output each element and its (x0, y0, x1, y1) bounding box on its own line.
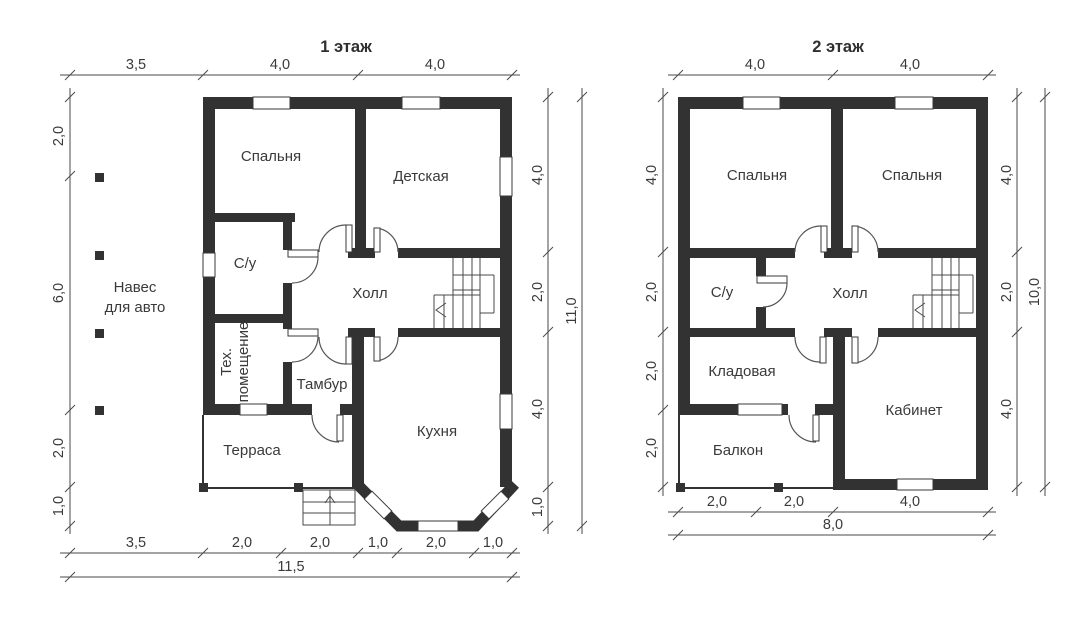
dim-label: 10,0 (1027, 278, 1043, 306)
dim-label: 4,0 (900, 494, 920, 510)
wall (678, 97, 690, 415)
room-label-hall: Холл (832, 285, 867, 302)
room-label-nursery: Детская (393, 168, 449, 185)
column-post (95, 251, 104, 260)
window (897, 479, 933, 490)
room-label-carport-line2: для авто (105, 299, 166, 316)
dim-label: 4,0 (270, 57, 290, 73)
wall (878, 248, 976, 258)
room-label-tambour: Тамбур (297, 376, 348, 393)
door-leaf (346, 337, 352, 364)
door-arc (795, 337, 820, 362)
door-arc (312, 415, 339, 442)
floor-plan-sheet: 1 этаж (0, 0, 1090, 624)
dim-label: 4,0 (900, 57, 920, 73)
wall (203, 314, 292, 323)
wall (398, 248, 500, 258)
window (203, 253, 215, 277)
window (738, 404, 782, 415)
dim-label: 2,0 (51, 126, 67, 146)
window (743, 97, 780, 109)
wall (283, 362, 292, 404)
door-leaf (374, 228, 380, 252)
column-post (95, 173, 104, 182)
door-arc (292, 336, 318, 362)
wall (878, 328, 976, 337)
window (500, 394, 512, 429)
dim-label: 4,0 (999, 165, 1015, 185)
door-arc (319, 337, 346, 364)
dim-label: 3,5 (126, 535, 146, 551)
door-leaf (757, 276, 787, 283)
floor-plan-2: 2 этаж (644, 38, 1050, 540)
dim-label: 2,0 (51, 438, 67, 458)
dim-label: 2,0 (530, 282, 546, 302)
door-leaf (346, 225, 352, 252)
room-label-bathroom: С/у (711, 284, 734, 301)
column-post (199, 483, 208, 492)
door-leaf (852, 337, 858, 363)
wall (283, 213, 292, 250)
room-label-study: Кабинет (885, 402, 942, 419)
wall (352, 328, 364, 487)
wall (833, 328, 845, 490)
wall (355, 97, 366, 258)
dim-label: 4,0 (530, 165, 546, 185)
room-label-bedroom: Спальня (241, 148, 301, 165)
dim-label: 6,0 (51, 283, 67, 303)
door-leaf (374, 337, 380, 361)
door-arc (292, 257, 318, 283)
room-label-carport-line1: Навес (114, 279, 157, 296)
dim-label: 2,0 (232, 535, 252, 551)
wall (203, 213, 295, 222)
wall (976, 97, 988, 490)
window (402, 97, 440, 109)
dim-label: 3,5 (126, 57, 146, 73)
plan1-title: 1 этаж (320, 38, 372, 56)
wall (690, 328, 795, 337)
door-arc (789, 415, 816, 442)
dim-label: 4,0 (644, 165, 660, 185)
dim-label: 1,0 (530, 497, 546, 517)
dim-label: 1,0 (51, 496, 67, 516)
dim-label: 1,0 (368, 535, 388, 551)
dim-label: 2,0 (310, 535, 330, 551)
column-post (294, 483, 303, 492)
room-label-hall: Холл (352, 285, 387, 302)
plan1-carport-posts (95, 173, 104, 415)
dim-label: 4,0 (745, 57, 765, 73)
room-label-balcony: Балкон (713, 442, 763, 459)
door-leaf (288, 329, 318, 336)
floor-plan-drawing: 1 этаж (0, 0, 1090, 624)
dim-label: 2,0 (426, 535, 446, 551)
window (364, 491, 392, 519)
window (253, 97, 290, 109)
door-arc (319, 225, 346, 252)
room-label-bathroom: С/у (234, 255, 257, 272)
plan2-title: 2 этаж (812, 38, 864, 56)
door-leaf (820, 337, 826, 363)
door-leaf (813, 415, 819, 441)
window (240, 404, 267, 415)
room-label-kitchen: Кухня (417, 423, 457, 440)
dim-label: 8,0 (823, 517, 843, 533)
dim-label: 2,0 (644, 361, 660, 381)
wall (398, 328, 500, 337)
column-post (95, 329, 104, 338)
door-arc (763, 283, 787, 307)
floor-plan-1: 1 этаж (51, 38, 587, 582)
room-label-bedroom-left: Спальня (727, 167, 787, 184)
window (418, 521, 458, 531)
plan1-staircase (434, 258, 494, 328)
dim-label: 4,0 (530, 399, 546, 419)
door-leaf (821, 226, 827, 252)
door-leaf (288, 250, 318, 257)
room-label-terrace: Терраса (223, 442, 281, 459)
window (481, 491, 509, 519)
door-leaf (337, 415, 343, 441)
window (895, 97, 933, 109)
room-label-tech-line2: помещение (235, 322, 252, 403)
door-leaf (852, 226, 858, 252)
column-post (676, 483, 685, 492)
dim-label: 4,0 (999, 399, 1015, 419)
dim-label: 2,0 (644, 438, 660, 458)
dim-label: 11,0 (564, 297, 580, 324)
dim-label: 2,0 (784, 494, 804, 510)
room-label-bedroom-right: Спальня (882, 167, 942, 184)
dim-label: 2,0 (999, 282, 1015, 302)
wall (756, 307, 766, 337)
wall (690, 248, 795, 258)
door-arc (795, 226, 821, 252)
wall (283, 283, 292, 329)
plan2-staircase (913, 258, 973, 328)
dim-label: 2,0 (644, 282, 660, 302)
dim-label: 1,0 (483, 535, 503, 551)
dim-label: 2,0 (707, 494, 727, 510)
window (500, 157, 512, 196)
wall (824, 248, 852, 258)
wall (756, 248, 766, 276)
dim-label: 11,5 (277, 559, 304, 575)
column-post (774, 483, 783, 492)
plan1-porch-steps (303, 490, 355, 525)
room-label-storage: Кладовая (708, 363, 775, 380)
column-post (95, 406, 104, 415)
room-label-tech-line1: Тех. (218, 348, 235, 376)
dim-label: 4,0 (425, 57, 445, 73)
wall (831, 97, 843, 258)
